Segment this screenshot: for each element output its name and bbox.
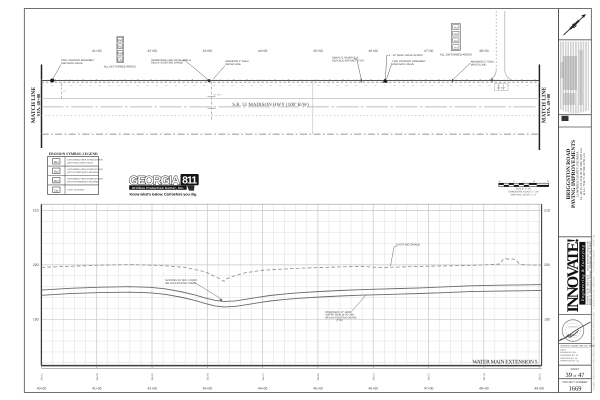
svg-text:DUST CONTROL: DUST CONTROL bbox=[67, 189, 85, 192]
svg-text:42+00: 42+00 bbox=[147, 386, 157, 390]
svg-text:EROSION SYMBOL LEGEND: EROSION SYMBOL LEGEND bbox=[49, 152, 98, 156]
svg-text:& L.L. 79 & 71 OF THE 11TH L.D: & L.L. 79 & 71 OF THE 11TH L.D. bbox=[582, 153, 586, 196]
svg-text:364.21: 364.21 bbox=[41, 373, 44, 381]
svg-text:365.05: 365.05 bbox=[96, 373, 99, 381]
svg-text:Ds1: Ds1 bbox=[454, 26, 459, 29]
svg-text:DISTURBED AREA STABILIZATION: DISTURBED AREA STABILIZATION bbox=[67, 168, 103, 171]
svg-text:45+00: 45+00 bbox=[313, 49, 323, 53]
svg-text:BELOW EXISTING CREEK: BELOW EXISTING CREEK bbox=[165, 282, 196, 285]
svg-text:WATER MAIN EXTENSION 5: WATER MAIN EXTENSION 5 bbox=[473, 359, 538, 365]
svg-text:(WITH MULCHING ONLY): (WITH MULCHING ONLY) bbox=[67, 161, 93, 164]
svg-text:39 of 47: 39 of 47 bbox=[566, 372, 586, 379]
svg-text:STA. 40+00: STA. 40+00 bbox=[36, 93, 41, 116]
svg-text:MB 36 LF: MB 36 LF bbox=[497, 86, 506, 89]
svg-text:1669: 1669 bbox=[569, 385, 582, 392]
svg-text:200: 200 bbox=[33, 263, 39, 267]
svg-text:DESIGNED BY: JA: DESIGNED BY: JA bbox=[560, 354, 578, 357]
svg-text:48+00: 48+00 bbox=[479, 386, 489, 390]
svg-text:HORIZONTAL SCALE: 1"=20’: HORIZONTAL SCALE: 1"=20’ bbox=[508, 191, 539, 194]
svg-text:811: 811 bbox=[182, 176, 197, 187]
svg-text:Ds3: Ds3 bbox=[54, 179, 59, 183]
svg-text:GEORGIA: GEORGIA bbox=[568, 326, 578, 329]
svg-text:46+00: 46+00 bbox=[369, 49, 379, 53]
svg-text:210: 210 bbox=[544, 209, 550, 213]
svg-text:Engineering & Surveying: Engineering & Surveying bbox=[580, 245, 585, 302]
svg-text:WATER LINE: WATER LINE bbox=[225, 63, 241, 66]
svg-text:(TYP.): (TYP.) bbox=[336, 319, 343, 322]
svg-text:43+00: 43+00 bbox=[203, 49, 213, 53]
svg-text:STA. 49+00: STA. 49+00 bbox=[546, 93, 551, 116]
svg-text:Ds3: Ds3 bbox=[454, 40, 459, 43]
svg-text:S.R. 51 MADISON HWY (100’ R/W): S.R. 51 MADISON HWY (100’ R/W) bbox=[232, 102, 309, 108]
svg-text:200: 200 bbox=[544, 263, 550, 267]
svg-text:Ds1: Ds1 bbox=[54, 160, 59, 164]
svg-text:ALL DISTURBED AREAS: ALL DISTURBED AREAS bbox=[440, 53, 472, 56]
svg-text:365.60: 365.60 bbox=[317, 373, 320, 381]
svg-text:46+00: 46+00 bbox=[369, 386, 379, 390]
svg-text:SHEET: SHEET bbox=[571, 368, 580, 371]
svg-text:Ds2: Ds2 bbox=[118, 46, 123, 49]
svg-text:MULCH EXISTING GRASS: MULCH EXISTING GRASS bbox=[151, 62, 183, 65]
svg-text:210: 210 bbox=[33, 209, 39, 213]
svg-text:44+00: 44+00 bbox=[258, 386, 268, 390]
svg-text:EXISTING GRADE: EXISTING GRADE bbox=[397, 243, 421, 247]
svg-text:Know what's below. Call before: Know what's below. Call before you dig. bbox=[130, 193, 198, 197]
svg-text:DISTURBED AREA STABILIZATION: DISTURBED AREA STABILIZATION bbox=[67, 178, 103, 181]
svg-text:Ds2: Ds2 bbox=[454, 33, 459, 36]
svg-text:WATER LINE: WATER LINE bbox=[471, 63, 487, 66]
svg-text:47+00: 47+00 bbox=[424, 49, 434, 53]
svg-text:190: 190 bbox=[33, 318, 39, 322]
svg-text:49+00: 49+00 bbox=[534, 386, 544, 390]
svg-text:Ds1: Ds1 bbox=[118, 39, 123, 42]
svg-text:48+00: 48+00 bbox=[479, 49, 489, 53]
svg-text:365.92: 365.92 bbox=[151, 373, 154, 381]
svg-text:Utilities Protection Center, I: Utilities Protection Center, Inc. bbox=[132, 186, 184, 190]
svg-text:DATE:: DATE: bbox=[560, 348, 566, 351]
svg-text:42+00: 42+00 bbox=[147, 49, 157, 53]
svg-text:DRAWN BY: BW: DRAWN BY: BW bbox=[560, 351, 576, 354]
svg-text:43+00: 43+00 bbox=[203, 386, 213, 390]
svg-text:368.01: 368.01 bbox=[538, 373, 541, 381]
svg-text:APPROVED BY: JA: APPROVED BY: JA bbox=[560, 360, 579, 363]
svg-text:ALL DISTURBED AREAS: ALL DISTURBED AREAS bbox=[104, 66, 136, 69]
svg-text:47+00: 47+00 bbox=[424, 386, 434, 390]
svg-text:190: 190 bbox=[544, 318, 550, 322]
svg-text:SCALE: 1"=20’: SCALE: 1"=20’ bbox=[516, 188, 532, 191]
svg-text:(WITH TEMPORARY SEEDING): (WITH TEMPORARY SEEDING) bbox=[67, 171, 99, 174]
svg-text:366.14: 366.14 bbox=[372, 373, 375, 381]
svg-text:363.48: 363.48 bbox=[207, 373, 210, 381]
svg-text:45+00: 45+00 bbox=[313, 386, 323, 390]
svg-text:DISTURBED AREA STABILIZATION: DISTURBED AREA STABILIZATION bbox=[67, 159, 103, 162]
svg-text:12": 12" bbox=[63, 90, 66, 93]
svg-text:44+00: 44+00 bbox=[258, 49, 268, 53]
svg-text:18" RCP: 18" RCP bbox=[213, 94, 222, 97]
svg-text:41+00: 41+00 bbox=[92, 386, 102, 390]
svg-text:(WITH PERMANENT SEEDING): (WITH PERMANENT SEEDING) bbox=[67, 180, 99, 183]
svg-text:VERTICAL SCALE: 1"=2’: VERTICAL SCALE: 1"=2’ bbox=[511, 194, 537, 197]
svg-text:AND GATE VALVE: AND GATE VALVE bbox=[392, 63, 414, 66]
svg-text:2814 N. Patterson Street, Vald: 2814 N. Patterson Street, Valdosta, GA 3… bbox=[589, 241, 592, 306]
svg-text:41+00: 41+00 bbox=[92, 49, 102, 53]
svg-text:366.72: 366.72 bbox=[428, 373, 431, 381]
svg-text:364.77: 364.77 bbox=[262, 373, 265, 381]
svg-text:REPLACE ASPHALT (TYP.): REPLACE ASPHALT (TYP.) bbox=[332, 59, 364, 62]
svg-text:Ds2: Ds2 bbox=[54, 169, 59, 173]
svg-text:JACOB N. ALBRITTON, P.E. 34567: JACOB N. ALBRITTON, P.E. 34567 bbox=[560, 345, 595, 348]
svg-text:367.35: 367.35 bbox=[483, 373, 486, 381]
svg-text:AND GATE VALVE: AND GATE VALVE bbox=[61, 62, 83, 65]
svg-text:PROJECT NUMBER: PROJECT NUMBER bbox=[563, 381, 588, 384]
svg-text:1 - 12" GATE VALVE W/ BOX: 1 - 12" GATE VALVE W/ BOX bbox=[389, 54, 423, 57]
svg-text:40+00: 40+00 bbox=[37, 386, 47, 390]
svg-text:Ds3: Ds3 bbox=[118, 52, 123, 55]
svg-text:Du: Du bbox=[54, 188, 58, 192]
svg-text:Z:\1669 - BRIGGSTON ROAD PAVIN: Z:\1669 - BRIGGSTON ROAD PAVING\DWG\1669… bbox=[593, 234, 596, 390]
svg-text:CHECKED BY: JA: CHECKED BY: JA bbox=[560, 357, 578, 360]
